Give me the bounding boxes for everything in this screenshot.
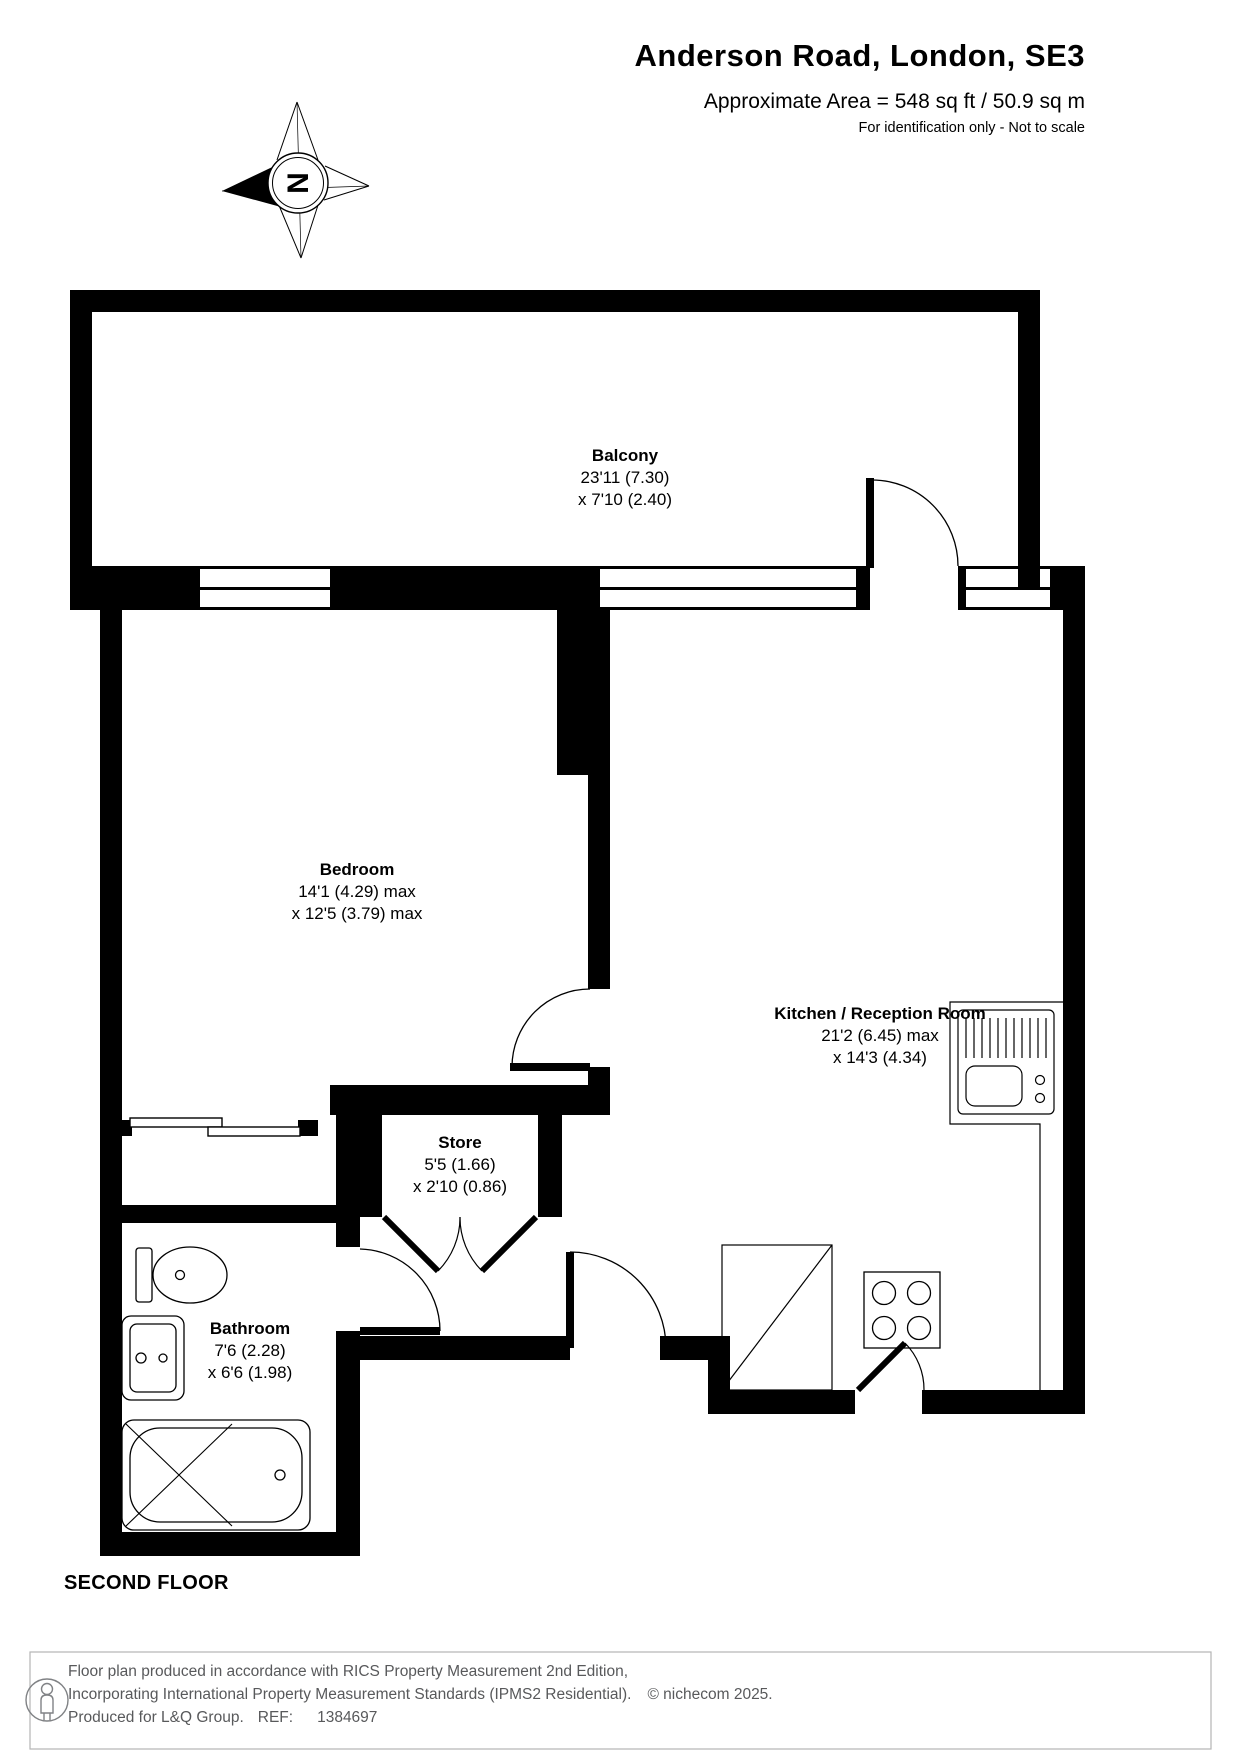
approximate-area: Approximate Area = 548 sq ft / 50.9 sq m — [704, 90, 1085, 114]
room-dim: x 7'10 (2.40) — [578, 489, 672, 511]
basin-icon — [122, 1316, 184, 1400]
compass-north-letter: N — [282, 172, 315, 194]
room-dim: 23'11 (7.30) — [578, 467, 672, 489]
produced-for-text: Produced for L&Q Group. — [68, 1709, 244, 1726]
floorplan-page: N Anderson Road, London, SE3 Approximate… — [0, 0, 1241, 1755]
room-label-store: Store 5'5 (1.66) x 2'10 (0.86) — [413, 1132, 507, 1198]
room-dim: x 12'5 (3.79) max — [292, 903, 423, 925]
person-icon — [26, 1679, 68, 1721]
room-name: Bathroom — [208, 1318, 293, 1340]
footer-disclaimer: Floor plan produced in accordance with R… — [68, 1660, 773, 1729]
balcony-door-icon — [866, 478, 958, 568]
bedroom-door-icon — [510, 989, 590, 1071]
identification-note: For identification only - Not to scale — [859, 120, 1085, 136]
room-dim: 14'1 (4.29) max — [292, 881, 423, 903]
footer-line-3: Produced for L&Q Group.REF:1384697 — [68, 1706, 773, 1729]
ref-label: REF: — [258, 1709, 293, 1726]
toilet-icon — [136, 1247, 227, 1303]
room-label-bathroom: Bathroom 7'6 (2.28) x 6'6 (1.98) — [208, 1318, 293, 1384]
room-name: Store — [413, 1132, 507, 1154]
cupboard-door-icon — [858, 1343, 924, 1390]
room-dim: x 6'6 (1.98) — [208, 1362, 293, 1384]
copyright-text: © nichecom 2025. — [647, 1686, 772, 1703]
footer-line-2: Incorporating International Property Mea… — [68, 1683, 773, 1706]
footer-line-1: Floor plan produced in accordance with R… — [68, 1660, 773, 1683]
room-dim: 7'6 (2.28) — [208, 1340, 293, 1362]
room-name: Bedroom — [292, 859, 423, 881]
room-dim: 5'5 (1.66) — [413, 1154, 507, 1176]
bath-icon — [122, 1420, 310, 1530]
store-doors-icon — [384, 1217, 536, 1271]
room-label-balcony: Balcony 23'11 (7.30) x 7'10 (2.40) — [578, 445, 672, 511]
balcony-walls — [70, 290, 1040, 588]
room-dim: 21'2 (6.45) max — [774, 1025, 986, 1047]
window-icon — [200, 566, 1050, 610]
room-name: Kitchen / Reception Room — [774, 1003, 986, 1025]
ref-value: 1384697 — [317, 1709, 377, 1726]
room-label-bedroom: Bedroom 14'1 (4.29) max x 12'5 (3.79) ma… — [292, 859, 423, 925]
room-label-kitchen-reception: Kitchen / Reception Room 21'2 (6.45) max… — [774, 1003, 986, 1069]
room-dim: x 14'3 (4.34) — [774, 1047, 986, 1069]
entry-door-icon — [566, 1252, 666, 1348]
page-title: Anderson Road, London, SE3 — [635, 38, 1085, 74]
floor-name-label: SECOND FLOOR — [64, 1572, 229, 1595]
room-dim: x 2'10 (0.86) — [413, 1176, 507, 1198]
wardrobe-sliding-doors-icon — [112, 1118, 318, 1136]
floor-plan-svg: N — [0, 0, 1241, 1755]
room-name: Balcony — [578, 445, 672, 467]
hob-icon — [864, 1272, 940, 1348]
interior-walls — [100, 610, 610, 1556]
